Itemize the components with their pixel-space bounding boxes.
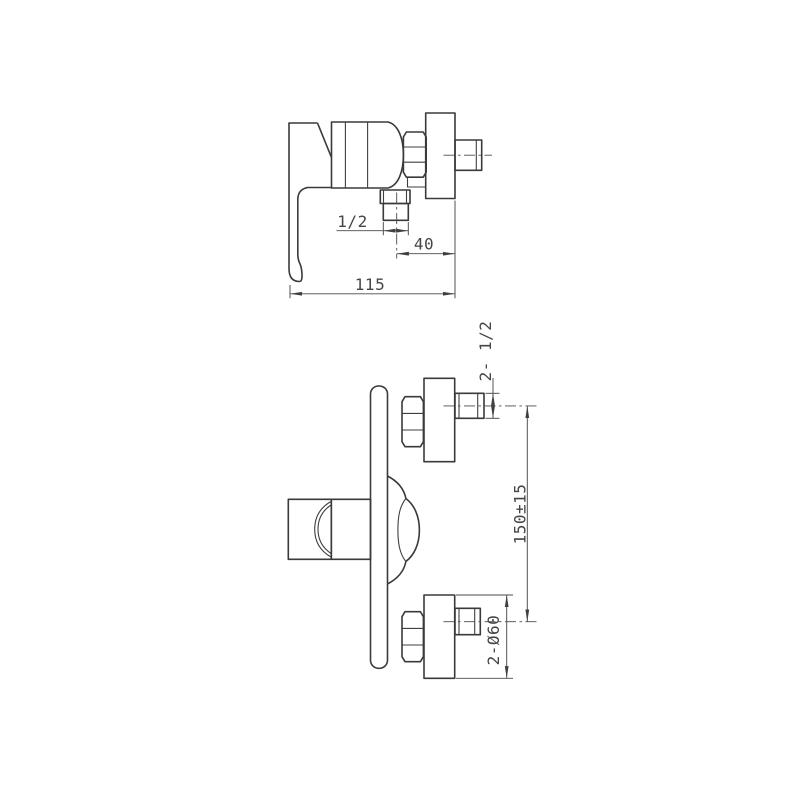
knob-crescent-outer (315, 502, 331, 558)
outlet-side (380, 190, 410, 220)
dim-flange-diameter: 2-Ø60 (456, 595, 513, 678)
dim-label-depth: 115 (355, 275, 385, 294)
top-inlet-union (402, 378, 538, 461)
dim-label-flange-diameter: 2-Ø60 (484, 615, 503, 666)
knob-crescent-inner (318, 505, 331, 554)
outlet-pipe (383, 204, 408, 221)
dim-inlet-spacing: 150±15 (511, 406, 530, 622)
dim-outlet-to-wall: 40 (397, 201, 455, 299)
dim-label-outlet-thread: 1/2 (337, 212, 367, 231)
shower-mixer-technical-drawing: 1/2 40 115 (0, 0, 800, 800)
elbow-step (408, 177, 426, 187)
body-plate (371, 386, 388, 668)
wall-plate-side (426, 113, 455, 199)
dim-label-inlet-thread: 2- 1/2 (476, 321, 495, 382)
escutcheon-plate (424, 595, 455, 678)
hex-nut-outline (403, 132, 426, 177)
technical-drawing-page: 1/2 40 115 (0, 0, 800, 800)
handle-knob (288, 499, 331, 559)
dim-outlet-thread: 1/2 (337, 212, 409, 235)
escutcheon-plate (424, 378, 455, 461)
handle-front (288, 499, 370, 559)
outlet-collar (380, 190, 410, 204)
bottom-inlet-union (402, 595, 538, 678)
hex-nut-outline (402, 397, 423, 447)
dim-depth: 115 (290, 275, 455, 299)
dim-inlet-thread: 2- 1/2 (476, 321, 500, 419)
union-nut-side (403, 132, 426, 177)
handle-neck-line (318, 123, 332, 158)
dim-label-outlet-to-wall: 40 (414, 235, 434, 254)
dim-label-inlet-spacing: 150±15 (511, 484, 530, 545)
handle-stem (331, 499, 370, 559)
side-view: 1/2 40 115 (289, 113, 492, 298)
handle-outline (289, 123, 332, 282)
dome-inner-profile (398, 499, 406, 562)
hex-nut-outline (402, 612, 423, 662)
dome-outer-profile (388, 476, 420, 584)
front-view: 2- 1/2 150±15 2-Ø60 (288, 321, 537, 679)
